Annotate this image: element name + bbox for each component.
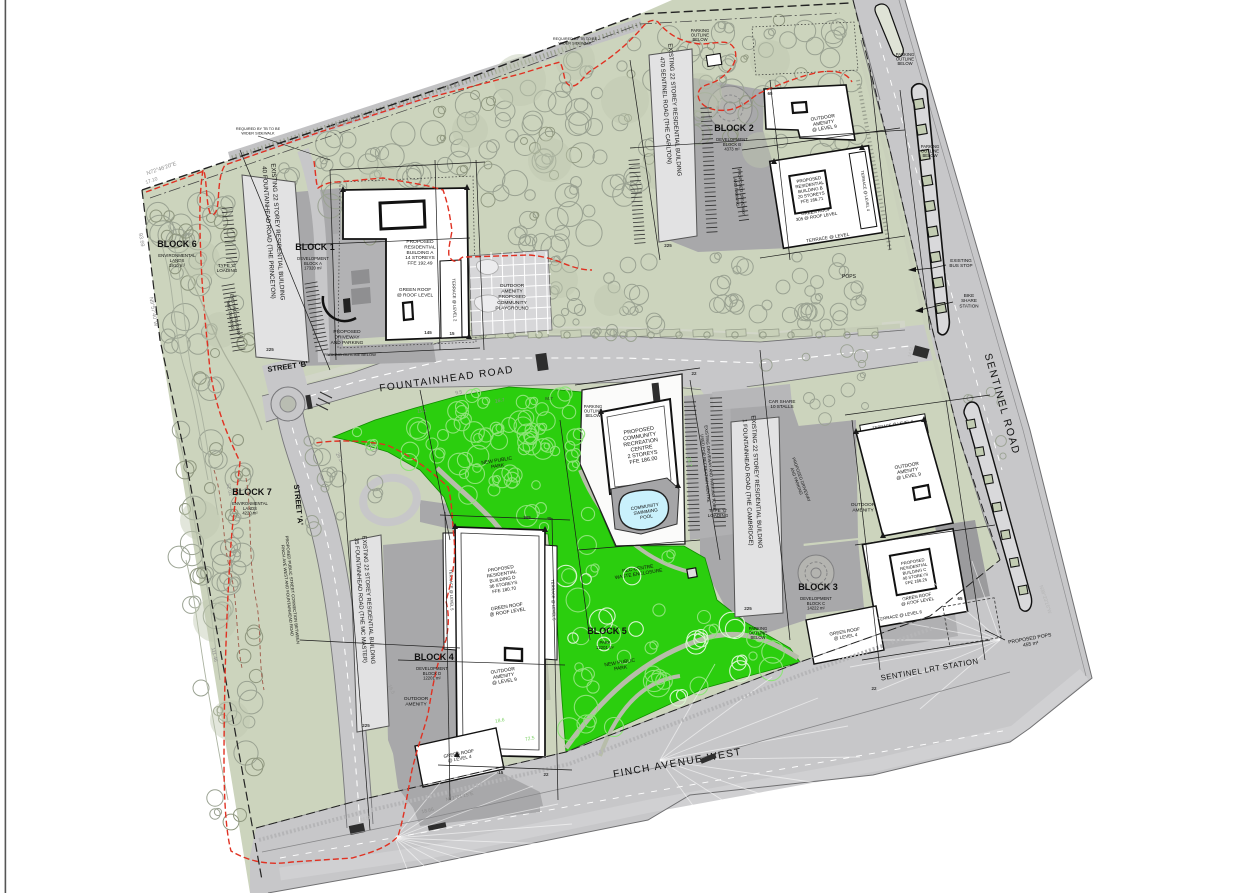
svg-text:BELOW: BELOW [692, 37, 707, 42]
svg-text:REQUIRED BY TB TO BE: REQUIRED BY TB TO BE [553, 37, 598, 41]
svg-text:@ ROOF LEVEL: @ ROOF LEVEL [397, 292, 434, 298]
svg-text:365: 365 [523, 515, 531, 520]
svg-text:22: 22 [691, 371, 697, 376]
svg-text:AMENITY: AMENITY [852, 507, 874, 513]
svg-text:PROPOSED: PROPOSED [498, 294, 526, 300]
svg-text:REQUIRED BY TB TO BE: REQUIRED BY TB TO BE [236, 127, 281, 131]
svg-text:BLOCK 5: BLOCK 5 [587, 626, 627, 636]
svg-text:AND PARKING: AND PARKING [331, 340, 364, 346]
svg-text:BLOCK 1: BLOCK 1 [295, 242, 335, 252]
svg-text:FFE 192.49: FFE 192.49 [407, 261, 432, 267]
svg-text:OUTDOOR: OUTDOOR [404, 696, 429, 702]
svg-text:12201 m²: 12201 m² [423, 676, 441, 681]
svg-text:12201 m²: 12201 m² [596, 645, 614, 650]
svg-text:225: 225 [744, 606, 752, 611]
svg-text:BLOCK 4: BLOCK 4 [414, 652, 454, 662]
svg-text:225: 225 [664, 243, 672, 248]
svg-text:BLOCK 2: BLOCK 2 [714, 123, 754, 133]
svg-text:145: 145 [424, 330, 432, 335]
svg-text:22: 22 [871, 686, 877, 691]
svg-text:BELOW: BELOW [897, 61, 912, 66]
svg-text:45: 45 [546, 516, 552, 521]
svg-text:LOADING: LOADING [708, 513, 729, 518]
svg-text:WIDER SIDEWALK: WIDER SIDEWALK [241, 131, 275, 135]
svg-text:POPS: POPS [842, 274, 857, 280]
svg-text:PROPOSED: PROPOSED [333, 329, 361, 335]
svg-text:22: 22 [543, 772, 549, 777]
svg-text:14 STOREYS: 14 STOREYS [405, 255, 435, 261]
svg-text:BUS STOP: BUS STOP [949, 263, 972, 268]
svg-text:AMENITY: AMENITY [405, 701, 427, 707]
svg-text:BLOCK 7: BLOCK 7 [232, 487, 272, 497]
svg-text:225: 225 [362, 723, 370, 728]
svg-text:BELOW: BELOW [922, 153, 937, 158]
svg-text:LOADING: LOADING [217, 268, 238, 273]
svg-text:WIDER SIDEWALK: WIDER SIDEWALK [558, 41, 592, 45]
svg-text:17320 m²: 17320 m² [304, 266, 322, 271]
svg-text:RESIDENTIAL: RESIDENTIAL [404, 244, 436, 250]
svg-text:BELOW: BELOW [750, 635, 765, 640]
svg-text:AMENITY: AMENITY [501, 289, 523, 295]
svg-text:14222 m²: 14222 m² [807, 606, 825, 611]
svg-text:15: 15 [449, 331, 455, 336]
svg-text:OUTDOOR: OUTDOOR [500, 283, 525, 289]
svg-text:STATION: STATION [959, 303, 978, 308]
svg-text:M.7: M.7 [545, 396, 553, 401]
svg-text:PARKING OUTLINE BELOW: PARKING OUTLINE BELOW [324, 352, 376, 357]
svg-text:225: 225 [266, 347, 274, 352]
svg-text:PLAYGROUND: PLAYGROUND [495, 305, 529, 311]
svg-text:BLOCK 3: BLOCK 3 [798, 582, 838, 592]
svg-text:GREEN ROOF: GREEN ROOF [399, 287, 431, 293]
svg-text:BELOW: BELOW [585, 413, 600, 418]
svg-text:OUTDOOR: OUTDOOR [851, 502, 876, 508]
svg-text:4220 m²: 4220 m² [242, 511, 258, 516]
svg-text:BLOCK 6: BLOCK 6 [157, 239, 197, 249]
svg-text:BUILDING A: BUILDING A [407, 250, 435, 256]
svg-text:DRIVEWAY: DRIVEWAY [334, 335, 360, 341]
svg-text:-15: -15 [497, 770, 504, 775]
svg-text:65: 65 [957, 596, 963, 601]
svg-text:65: 65 [767, 91, 773, 96]
svg-text:4373 m²: 4373 m² [724, 147, 740, 152]
svg-text:9.5: 9.5 [455, 389, 463, 396]
svg-text:10 STALLS: 10 STALLS [770, 404, 793, 409]
svg-text:COMMUNITY: COMMUNITY [497, 300, 527, 306]
